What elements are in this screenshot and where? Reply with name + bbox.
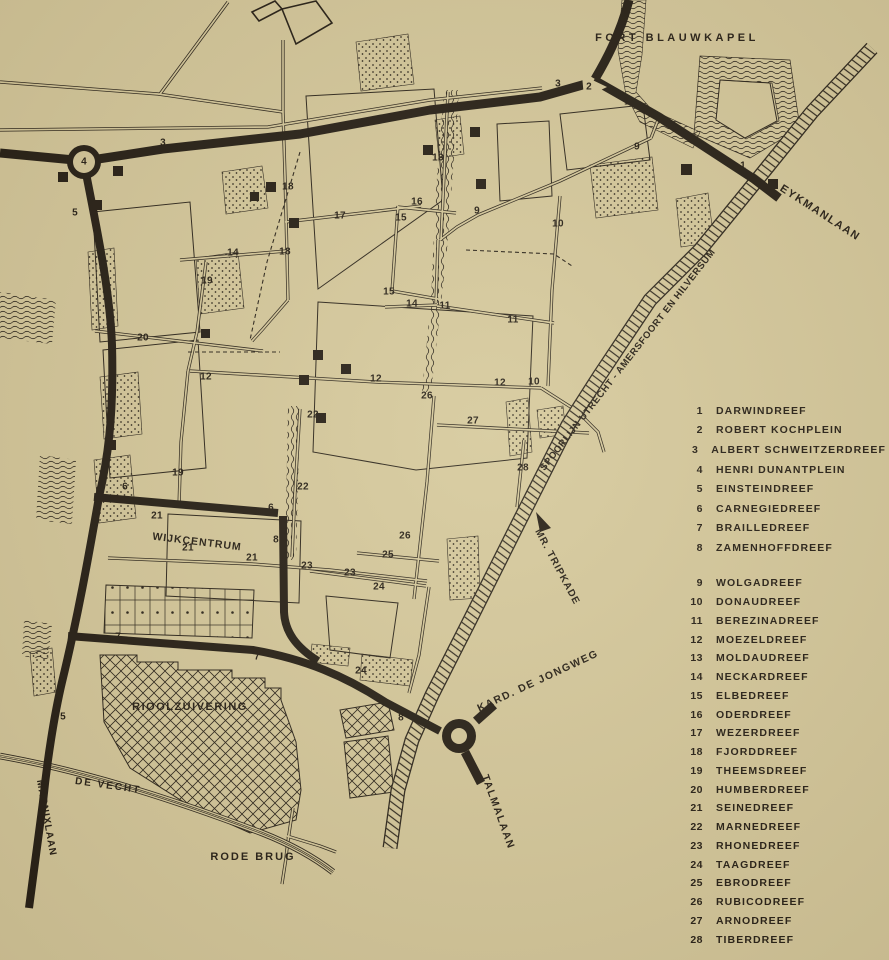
legend-item: 14NECKARDREEF — [681, 668, 886, 687]
legend-item: 26RUBICODREEF — [681, 893, 886, 912]
legend-item: 1DARWINDREEF — [681, 401, 886, 421]
legend-item-number: 26 — [681, 896, 703, 908]
legend-item: 13MOLDAUDREEF — [681, 649, 886, 668]
legend-item: 10DONAUDREEF — [681, 593, 886, 612]
legend-item: 20HUMBERDREEF — [681, 780, 886, 799]
legend-item: 7BRAILLEDREEF — [681, 519, 886, 539]
legend-item-name: DARWINDREEF — [716, 405, 807, 417]
legend-item: 6CARNEGIEDREEF — [681, 499, 886, 519]
legend-item-number: 13 — [681, 652, 703, 664]
legend-item: 5EINSTEINDREEF — [681, 479, 886, 499]
legend-item-number: 25 — [681, 877, 703, 889]
legend-item-number: 11 — [681, 615, 703, 627]
legend-item-number: 8 — [681, 542, 703, 554]
legend-item-number: 18 — [681, 746, 703, 758]
legend-item-number: 7 — [681, 522, 703, 534]
legend-item-number: 2 — [681, 424, 703, 436]
legend-item: 8ZAMENHOFFDREEF — [681, 538, 886, 558]
legend-item: 4HENRI DUNANTPLEIN — [681, 460, 886, 480]
legend-item: 23RHONEDREEF — [681, 837, 886, 856]
legend-item: 16ODERDREEF — [681, 705, 886, 724]
legend-item-number: 4 — [681, 464, 703, 476]
legend-item: 19THEEMSDREEF — [681, 762, 886, 781]
legend-item-name: DONAUDREEF — [716, 596, 801, 608]
legend-item: 2ROBERT KOCHPLEIN — [681, 421, 886, 441]
legend-item: 24TAAGDREEF — [681, 855, 886, 874]
legend-item-name: ELBEDREEF — [716, 690, 790, 702]
legend-item-name: TAAGDREEF — [716, 859, 790, 871]
legend-item: 25EBRODREEF — [681, 874, 886, 893]
legend-item-name: RUBICODREEF — [716, 896, 805, 908]
legend-item-number: 17 — [681, 727, 703, 739]
legend-item-name: ALBERT SCHWEITZERDREEF — [711, 444, 886, 456]
legend-item: 12MOEZELDREEF — [681, 630, 886, 649]
legend-item-name: SEINEDREEF — [716, 802, 794, 814]
legend-item-number: 24 — [681, 859, 703, 871]
legend-item: 28TIBERDREEF — [681, 930, 886, 949]
roundabout-island-2 — [451, 728, 467, 744]
legend-item-number: 12 — [681, 634, 703, 646]
legend-item: 3ALBERT SCHWEITZERDREEF — [681, 440, 886, 460]
legend-item-number: 23 — [681, 840, 703, 852]
legend-item-number: 16 — [681, 709, 703, 721]
legend-item: 21SEINEDREEF — [681, 799, 886, 818]
legend-item: 27ARNODREEF — [681, 912, 886, 931]
legend-item-name: BEREZINADREEF — [716, 615, 820, 627]
legend-item-number: 5 — [681, 483, 703, 495]
legend-item: 9WOLGADREEF — [681, 574, 886, 593]
legend-group-2: 9WOLGADREEF10DONAUDREEF11BEREZINADREEF12… — [681, 574, 886, 949]
legend-item: 15ELBEDREEF — [681, 687, 886, 706]
legend-item-name: HENRI DUNANTPLEIN — [716, 464, 846, 476]
legend-item-number: 14 — [681, 671, 703, 683]
legend-item-name: WEZERDREEF — [716, 727, 801, 739]
legend-item-name: ROBERT KOCHPLEIN — [716, 424, 843, 436]
legend-item-number: 19 — [681, 765, 703, 777]
legend-item-name: WOLGADREEF — [716, 577, 803, 589]
roundabout-island — [73, 151, 95, 173]
legend-item-name: CARNEGIEDREEF — [716, 503, 821, 515]
legend-item-name: MOLDAUDREEF — [716, 652, 810, 664]
legend-group-1: 1DARWINDREEF2ROBERT KOCHPLEIN3ALBERT SCH… — [681, 401, 886, 558]
allotment-strip — [104, 585, 254, 638]
legend-item-number: 9 — [681, 577, 703, 589]
legend-item-number: 27 — [681, 915, 703, 927]
legend-item-name: THEEMSDREEF — [716, 765, 807, 777]
map-page: FORT BLAUWKAPELEYKMANLAANSPOORLIJN UTREC… — [0, 0, 889, 960]
legend-item: 22MARNEDREEF — [681, 818, 886, 837]
legend-item-name: ARNODREEF — [716, 915, 792, 927]
legend-item-number: 1 — [681, 405, 703, 417]
legend-item-name: FJORDDREEF — [716, 746, 798, 758]
legend-item-name: RHONEDREEF — [716, 840, 801, 852]
legend-item-number: 20 — [681, 784, 703, 796]
legend-item: 17WEZERDREEF — [681, 724, 886, 743]
legend-item: 11BEREZINADREEF — [681, 612, 886, 631]
legend-item-number: 3 — [681, 444, 698, 456]
legend-item-number: 15 — [681, 690, 703, 702]
legend-item-number: 21 — [681, 802, 703, 814]
legend-item-name: MOEZELDREEF — [716, 634, 807, 646]
legend-item-number: 28 — [681, 934, 703, 946]
legend-item-name: BRAILLEDREEF — [716, 522, 810, 534]
legend-item-name: TIBERDREEF — [716, 934, 794, 946]
legend-item-name: ZAMENHOFFDREEF — [716, 542, 833, 554]
legend-item-name: MARNEDREEF — [716, 821, 801, 833]
legend-item-number: 10 — [681, 596, 703, 608]
legend-item-number: 22 — [681, 821, 703, 833]
legend-item-number: 6 — [681, 503, 703, 515]
legend-item-name: EINSTEINDREEF — [716, 483, 814, 495]
legend-item: 18FJORDDREEF — [681, 743, 886, 762]
legend-item-name: HUMBERDREEF — [716, 784, 810, 796]
legend-item-name: EBRODREEF — [716, 877, 792, 889]
legend-item-name: NECKARDREEF — [716, 671, 809, 683]
legend-item-name: ODERDREEF — [716, 709, 792, 721]
